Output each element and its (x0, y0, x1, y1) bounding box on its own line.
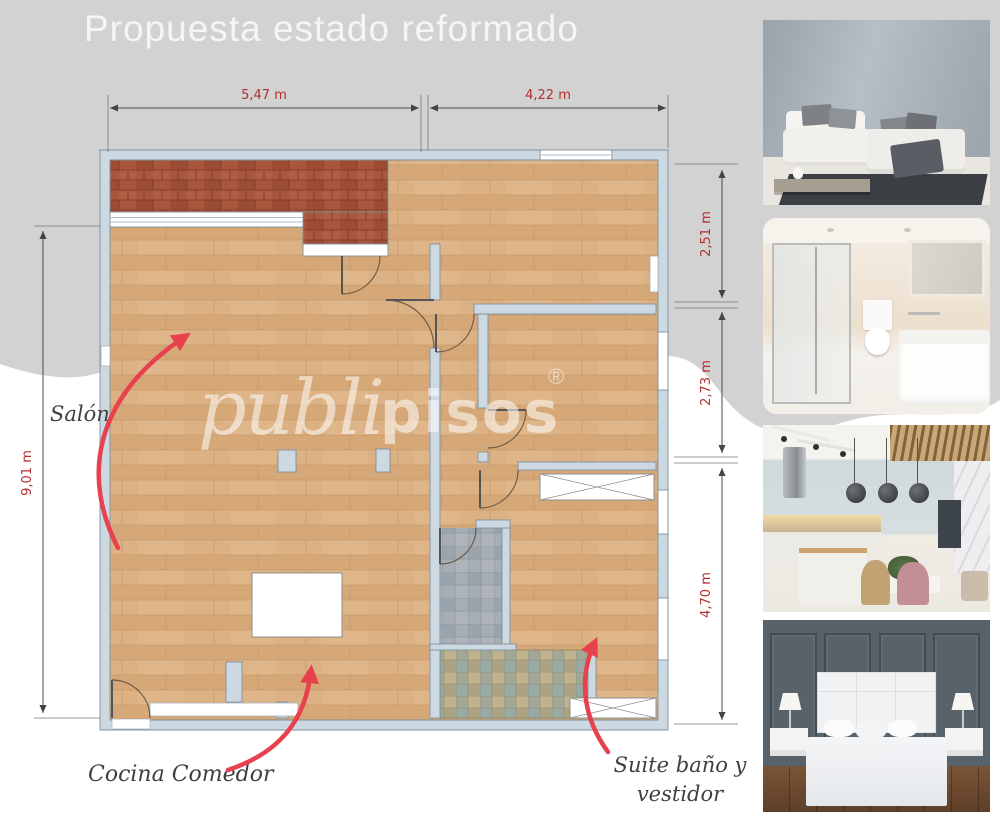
vase (793, 167, 803, 179)
kitchen-island (799, 548, 867, 604)
right-window-1 (658, 332, 668, 390)
label-salon: Salón (50, 402, 110, 426)
toilet (865, 328, 890, 355)
pendant-lamp (909, 483, 929, 503)
dining-chair-beige (861, 560, 891, 605)
column (376, 449, 390, 472)
nightstand (770, 728, 809, 757)
label-suite-line1: Suite baño y (614, 753, 748, 777)
pillow (824, 720, 854, 737)
photo-bedroom (763, 620, 990, 812)
dining-chair-pink (897, 562, 929, 605)
pendant-lamp (878, 483, 898, 503)
left-wall-niche (101, 346, 110, 366)
ceiling-light (827, 228, 834, 232)
terrace-brick (110, 160, 388, 212)
page-title: Propuesta estado reformado (84, 8, 579, 50)
dim-right-middle: 2,73 m (699, 360, 714, 406)
photo-bathroom (763, 218, 990, 414)
column (278, 450, 296, 472)
right-window-3 (658, 598, 668, 660)
toilet-tank (863, 300, 893, 329)
dim-top-left: 5,47 m (241, 88, 287, 103)
pendant-cord (917, 438, 918, 487)
pendant-cord (854, 438, 855, 487)
coffee-table (774, 179, 869, 192)
shower-frame (815, 247, 817, 394)
dim-top-right: 4,22 m (525, 88, 571, 103)
headboard-seam (856, 672, 857, 733)
label-suite-line2: vestidor (637, 782, 725, 806)
wardrobe-top (540, 474, 654, 500)
sofa-cushion (801, 104, 832, 126)
spotlight (781, 436, 787, 442)
pillow (888, 720, 918, 737)
bed (806, 737, 947, 806)
dim-right-bottom: 4,70 m (699, 572, 714, 618)
spotlight (813, 444, 819, 450)
dark-panel (938, 500, 961, 549)
wood-slat-ceiling (890, 425, 990, 461)
watermark-pisos: pisos (380, 378, 560, 446)
pendant-cord (886, 438, 887, 487)
pendant-lamp (846, 483, 866, 503)
photo-living-room (763, 20, 990, 205)
terrace-door-window (303, 244, 388, 256)
wall-niche (650, 256, 658, 292)
sofa-seat (783, 129, 874, 166)
salon-window (110, 212, 303, 227)
extractor-hood (783, 447, 806, 497)
right-window-2 (658, 490, 668, 534)
entrance-opening (112, 719, 150, 729)
suite-bath-mosaic-floor (440, 650, 588, 718)
terrace-brick-extension (303, 212, 388, 244)
lamp-stem (962, 710, 964, 727)
headboard-seam (817, 691, 935, 692)
mirror (909, 240, 985, 297)
label-cocina-comedor: Cocina Comedor (88, 762, 275, 787)
side-chair (961, 571, 988, 601)
wardrobe-bottom (570, 698, 656, 718)
dining-table (252, 573, 342, 637)
ceiling-light (904, 228, 911, 232)
shower-enclosure (772, 243, 851, 404)
watermark-publi: publi (198, 363, 383, 452)
floor-plan: publi pisos ® 5,47 m (0, 0, 755, 823)
spotlight (840, 451, 846, 457)
lamp-stem (789, 710, 791, 727)
kitchen-counter (150, 703, 298, 716)
dim-left: 9,01 m (20, 450, 35, 496)
photo-kitchen-dining (763, 425, 990, 612)
registered-mark: ® (548, 364, 564, 389)
dim-right-top: 2,51 m (699, 211, 714, 257)
reform-proposal-flyer: Propuesta estado reformado (0, 0, 1000, 823)
sofa-cushion (828, 108, 857, 129)
under-cabinet-light (763, 515, 881, 532)
faucet (908, 312, 940, 315)
vanity (899, 330, 990, 404)
nightstand (945, 728, 984, 757)
